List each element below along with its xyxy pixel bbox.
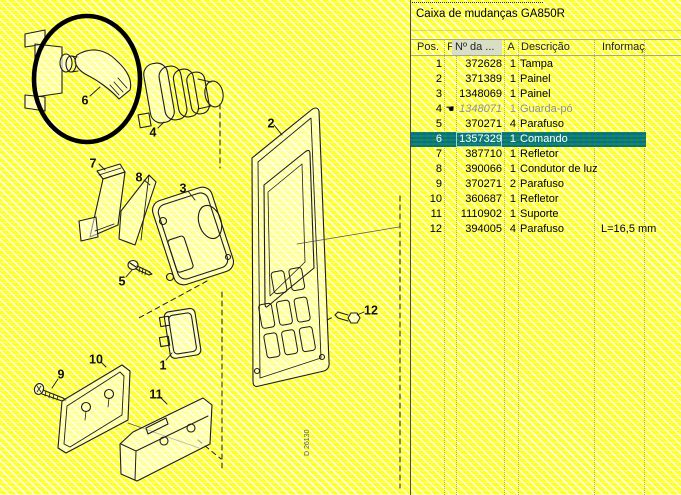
cell-info — [601, 102, 661, 117]
cell-pos: 10 — [411, 192, 442, 207]
part-7-bracket[interactable] — [79, 164, 125, 241]
part-12-screw[interactable] — [335, 312, 364, 323]
cell-quantity: 1 — [504, 162, 516, 177]
cell-quantity: 1 — [504, 57, 516, 72]
cell-part-number: 387710 — [456, 147, 502, 162]
cell-flag — [444, 132, 456, 147]
cell-description: Painel — [520, 72, 594, 87]
callout-9[interactable]: 9 — [58, 367, 65, 381]
cell-part-number: 371389 — [456, 72, 502, 87]
cell-info — [601, 132, 661, 147]
table-row[interactable]: 9 370271 2 Parafuso — [411, 177, 681, 192]
part-1-cover[interactable] — [159, 308, 201, 360]
header-description[interactable]: Descrição — [521, 40, 594, 55]
cell-part-number: 360687 — [456, 192, 502, 207]
cell-quantity: 1 — [504, 72, 516, 87]
cell-quantity: 1 — [504, 102, 516, 117]
parts-list-panel: Caixa de mudanças GA850R Pos. F Nº da ..… — [410, 0, 681, 495]
cell-part-number: 370271 — [456, 177, 502, 192]
cell-flag — [444, 87, 456, 102]
cell-info — [601, 147, 661, 162]
callout-5[interactable]: 5 — [119, 274, 126, 288]
cell-description: Refletor — [520, 147, 594, 162]
cell-part-number: 1357329 — [456, 132, 502, 147]
cell-info — [601, 162, 661, 177]
cell-pos: 4 — [411, 102, 442, 117]
cell-description: Guarda-pó — [520, 102, 594, 117]
callout-3[interactable]: 3 — [180, 181, 187, 195]
cell-info — [601, 72, 661, 87]
table-row[interactable]: 12 394005 4 Parafuso L=16,5 mm — [411, 222, 681, 237]
callout-12[interactable]: 12 — [364, 303, 378, 317]
callout-2[interactable]: 2 — [268, 116, 275, 130]
cell-part-number: 1348071 — [456, 102, 502, 117]
exploded-diagram: D 26130 647832512191011 — [0, 0, 410, 495]
cell-description: Suporte — [520, 207, 594, 222]
cell-quantity: 1 — [504, 87, 516, 102]
cell-info: L=16,5 mm — [601, 222, 661, 237]
cell-part-number: 370271 — [456, 117, 502, 132]
cell-part-number: 372628 — [456, 57, 502, 72]
cell-flag — [444, 147, 456, 162]
table-row[interactable]: 1 372628 1 Tampa — [411, 57, 681, 72]
cell-description: Refletor — [520, 192, 594, 207]
table-row[interactable]: 11 1110902 1 Suporte — [411, 207, 681, 222]
cell-part-number: 394005 — [456, 222, 502, 237]
cell-description: Painel — [520, 87, 594, 102]
cell-pos: 3 — [411, 87, 442, 102]
cell-info — [601, 177, 661, 192]
table-row[interactable]: 3 1348069 1 Painel — [411, 87, 681, 102]
cell-pos: 9 — [411, 177, 442, 192]
table-row[interactable]: 10 360687 1 Refletor — [411, 192, 681, 207]
cell-pos: 12 — [411, 222, 442, 237]
cell-info — [601, 192, 661, 207]
header-bottom-line — [411, 55, 681, 56]
cell-flag — [444, 192, 456, 207]
app-window: D 26130 647832512191011 Caixa de mudança… — [0, 0, 681, 495]
cell-flag — [444, 222, 456, 237]
cell-flag — [444, 177, 456, 192]
cell-info — [601, 57, 661, 72]
cell-quantity: 4 — [504, 117, 516, 132]
cell-flag — [444, 162, 456, 177]
panel-top-divider — [412, 2, 543, 3]
cell-flag — [444, 72, 456, 87]
header-pos[interactable]: Pos. — [417, 40, 444, 55]
table-header: Pos. F Nº da ... A Descrição Informaç... — [411, 40, 681, 55]
cell-description: Parafuso — [520, 117, 594, 132]
title-separator — [411, 30, 681, 31]
part-9-screw[interactable] — [33, 379, 66, 401]
cell-quantity: 1 — [504, 192, 516, 207]
cell-pos: 7 — [411, 147, 442, 162]
cell-pos: 5 — [411, 117, 442, 132]
cell-flag — [444, 117, 456, 132]
cell-quantity: 1 — [504, 132, 516, 147]
cell-description: Parafuso — [520, 222, 594, 237]
hand-note-icon: ☚ — [446, 104, 455, 115]
callout-1[interactable]: 1 — [160, 358, 167, 372]
callout-10[interactable]: 10 — [89, 352, 103, 366]
part-11-support[interactable] — [120, 397, 212, 481]
part-8-plate[interactable] — [119, 175, 156, 245]
cell-quantity: 1 — [504, 147, 516, 162]
assembly-title: Caixa de mudanças GA850R — [416, 8, 565, 20]
table-row[interactable]: 6 1357329 1 Comando — [411, 132, 646, 147]
part-3-panel[interactable] — [150, 185, 236, 288]
cell-part-number: 1110902 — [456, 207, 502, 222]
header-quantity[interactable]: A — [504, 40, 518, 55]
table-row[interactable]: 2 371389 1 Painel — [411, 72, 681, 87]
cell-quantity: 2 — [504, 177, 516, 192]
cell-flag — [444, 207, 456, 222]
callout-6[interactable]: 6 — [82, 93, 89, 107]
cell-pos: 1 — [411, 57, 442, 72]
callout-11[interactable]: 11 — [149, 387, 162, 401]
header-part-number[interactable]: Nº da ... — [452, 40, 502, 55]
cell-pos: 8 — [411, 162, 442, 177]
cell-flag: ☚ — [444, 102, 456, 117]
table-row[interactable]: 4 ☚ 1348071 1 Guarda-pó — [411, 102, 681, 117]
part-2-panel[interactable] — [252, 108, 399, 386]
drawing-number: D 26130 — [304, 429, 311, 456]
cell-flag — [444, 57, 456, 72]
parts-table-body: 1 372628 1 Tampa 2 371389 1 Painel 3 134… — [411, 57, 681, 237]
cell-description: Parafuso — [520, 177, 594, 192]
table-row[interactable]: 5 370271 4 Parafuso — [411, 117, 681, 132]
cell-pos: 11 — [411, 207, 442, 222]
callout-7[interactable]: 7 — [90, 156, 97, 170]
table-row[interactable]: 7 387710 1 Refletor — [411, 147, 681, 162]
cell-part-number: 1348069 — [456, 87, 502, 102]
part-5-screw[interactable] — [126, 261, 152, 278]
cell-pos: 2 — [411, 72, 442, 87]
header-info[interactable]: Informaç... — [602, 40, 646, 55]
cell-info — [601, 117, 661, 132]
cell-pos: 6 — [411, 132, 442, 147]
cell-quantity: 4 — [504, 222, 516, 237]
cell-info — [601, 207, 661, 222]
cell-info — [601, 87, 661, 102]
part-6-lever[interactable] — [25, 30, 131, 111]
callout-8[interactable]: 8 — [136, 170, 143, 184]
cell-quantity: 1 — [504, 207, 516, 222]
cell-part-number: 390066 — [456, 162, 502, 177]
table-row[interactable]: 8 390066 1 Condutor de luz — [411, 162, 681, 177]
cell-description: Tampa — [520, 57, 594, 72]
cell-description: Condutor de luz — [520, 162, 594, 177]
callout-4[interactable]: 4 — [150, 125, 157, 139]
part-4-boot[interactable] — [138, 61, 225, 128]
cell-description: Comando — [520, 132, 594, 147]
